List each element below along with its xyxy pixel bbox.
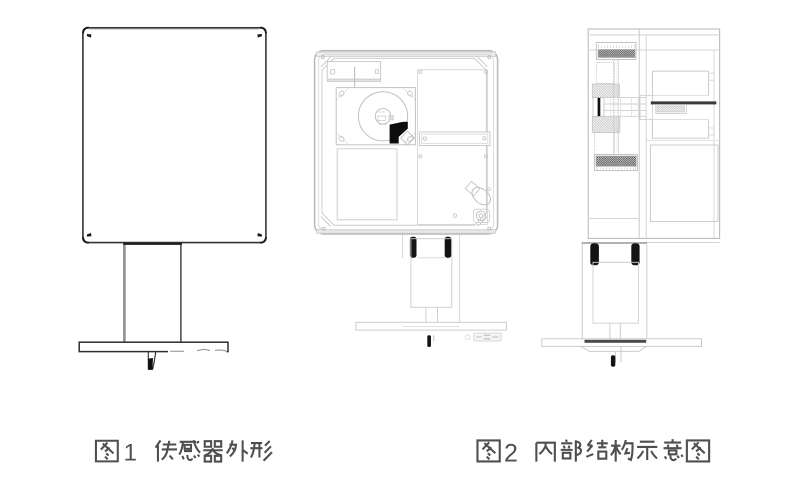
svg-text:1: 1: [124, 440, 137, 467]
svg-text:2: 2: [504, 439, 518, 467]
